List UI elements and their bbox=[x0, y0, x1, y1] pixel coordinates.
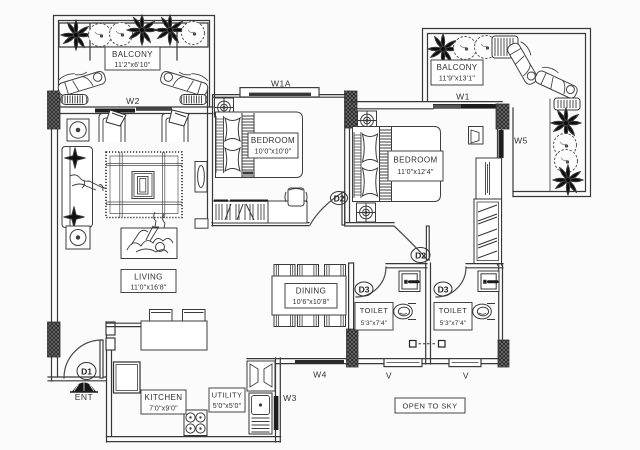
svg-text:5'3"x7'4": 5'3"x7'4" bbox=[440, 320, 467, 327]
svg-text:LIVING: LIVING bbox=[134, 273, 163, 282]
svg-text:W1A: W1A bbox=[271, 79, 291, 89]
svg-text:BALCONY: BALCONY bbox=[112, 50, 153, 59]
svg-text:ENT: ENT bbox=[75, 392, 94, 402]
svg-text:5'3"x7'4": 5'3"x7'4" bbox=[361, 320, 388, 327]
svg-text:W2: W2 bbox=[126, 96, 140, 106]
svg-text:5'0"x5'0": 5'0"x5'0" bbox=[213, 403, 242, 410]
svg-text:11'0"x12'4": 11'0"x12'4" bbox=[397, 169, 433, 176]
svg-text:D2: D2 bbox=[334, 194, 345, 204]
svg-text:D3: D3 bbox=[359, 285, 370, 295]
svg-text:W4: W4 bbox=[313, 370, 327, 380]
svg-text:D2: D2 bbox=[415, 251, 426, 261]
svg-text:TOILET: TOILET bbox=[360, 306, 389, 315]
svg-text:10'0"x10'0": 10'0"x10'0" bbox=[255, 149, 292, 156]
svg-text:W1: W1 bbox=[456, 92, 470, 102]
svg-text:11'0"x16'8": 11'0"x16'8" bbox=[130, 285, 166, 292]
svg-text:UTILITY: UTILITY bbox=[212, 391, 243, 400]
svg-text:V: V bbox=[386, 371, 392, 381]
svg-text:OPEN TO SKY: OPEN TO SKY bbox=[403, 402, 458, 411]
svg-text:KITCHEN: KITCHEN bbox=[145, 393, 183, 402]
svg-text:D1: D1 bbox=[81, 367, 92, 377]
svg-text:11'9"x13'1": 11'9"x13'1" bbox=[439, 76, 475, 83]
svg-text:W3: W3 bbox=[283, 393, 297, 403]
svg-text:10'6"x10'8": 10'6"x10'8" bbox=[293, 299, 330, 306]
svg-text:W5: W5 bbox=[514, 136, 528, 146]
svg-text:11'2"x6'10": 11'2"x6'10" bbox=[114, 62, 150, 69]
svg-text:TOILET: TOILET bbox=[439, 306, 468, 315]
svg-text:V: V bbox=[463, 371, 469, 381]
svg-text:BEDROOM: BEDROOM bbox=[251, 136, 295, 145]
svg-text:D3: D3 bbox=[438, 285, 449, 295]
svg-text:DINING: DINING bbox=[296, 287, 326, 296]
svg-text:BALCONY: BALCONY bbox=[436, 63, 477, 72]
svg-text:BEDROOM: BEDROOM bbox=[393, 156, 437, 165]
svg-text:7'0"x9'0": 7'0"x9'0" bbox=[149, 406, 178, 413]
